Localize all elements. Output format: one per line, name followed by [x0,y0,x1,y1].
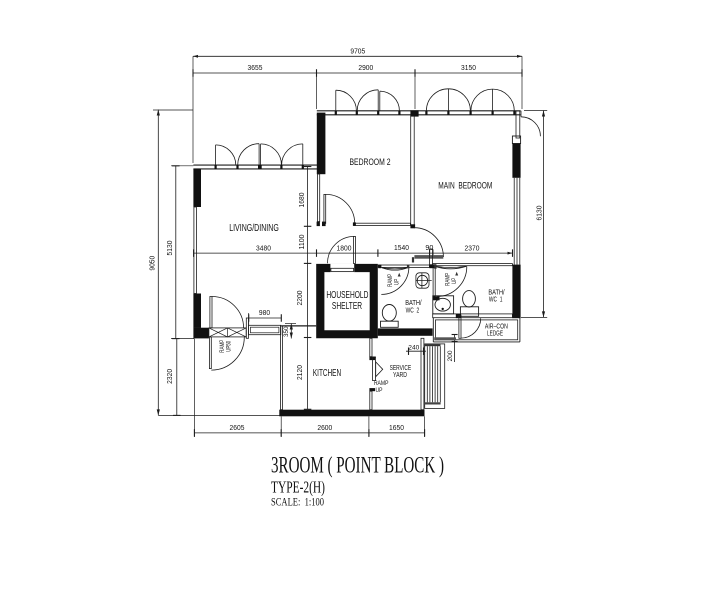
svg-text:240: 240 [408,345,419,352]
svg-text:UP: UP [452,278,458,284]
svg-text:2370: 2370 [465,243,480,252]
svg-text:TYPE-2(H): TYPE-2(H) [271,478,325,497]
svg-text:HOUSEHOLD: HOUSEHOLD [326,290,368,301]
svg-text:5130: 5130 [165,241,174,256]
svg-text:1800: 1800 [337,243,352,252]
svg-text:WC 2: WC 2 [406,305,420,314]
svg-text:YARD: YARD [393,370,407,379]
svg-text:3480: 3480 [256,243,271,252]
svg-text:MAIN BEDROOM: MAIN BEDROOM [438,180,492,191]
svg-text:2900: 2900 [358,63,373,72]
svg-text:1680: 1680 [297,193,306,208]
svg-text:SHELTER: SHELTER [332,301,362,312]
svg-text:9705: 9705 [350,47,365,56]
svg-text:RAMP: RAMP [388,274,394,287]
svg-text:1650: 1650 [389,423,404,432]
svg-text:SCALE: 1:100: SCALE: 1:100 [271,497,324,509]
svg-text:BEDROOM 2: BEDROOM 2 [350,157,391,168]
svg-text:2120: 2120 [295,365,304,380]
svg-text:RAMP: RAMP [445,273,451,286]
svg-text:1540: 1540 [394,243,409,252]
svg-text:UP: UP [394,279,400,285]
svg-text:2200: 2200 [295,291,304,306]
svg-text:980: 980 [259,308,270,317]
svg-text:3150: 3150 [461,63,476,72]
svg-text:LEDGE: LEDGE [487,328,503,337]
svg-text:RAMP: RAMP [374,381,389,387]
svg-text:WC 1: WC 1 [489,295,503,304]
svg-text:2320: 2320 [165,369,174,384]
svg-text:3655: 3655 [248,63,263,72]
svg-text:KITCHEN: KITCHEN [313,368,341,379]
svg-text:LIVING/DINING: LIVING/DINING [229,223,279,234]
svg-text:200: 200 [447,350,454,361]
svg-text:3ROOM ( POINT BLOCK ): 3ROOM ( POINT BLOCK ) [271,453,444,479]
svg-text:UP: UP [376,388,383,394]
svg-text:350: 350 [283,326,290,337]
svg-text:2600: 2600 [317,423,332,432]
svg-text:RAMP: RAMP [220,340,226,353]
svg-text:6130: 6130 [535,206,544,221]
svg-text:2605: 2605 [230,423,245,432]
svg-text:1100: 1100 [297,235,306,250]
svg-text:9050: 9050 [147,256,156,271]
svg-text:UP50: UP50 [226,340,232,351]
